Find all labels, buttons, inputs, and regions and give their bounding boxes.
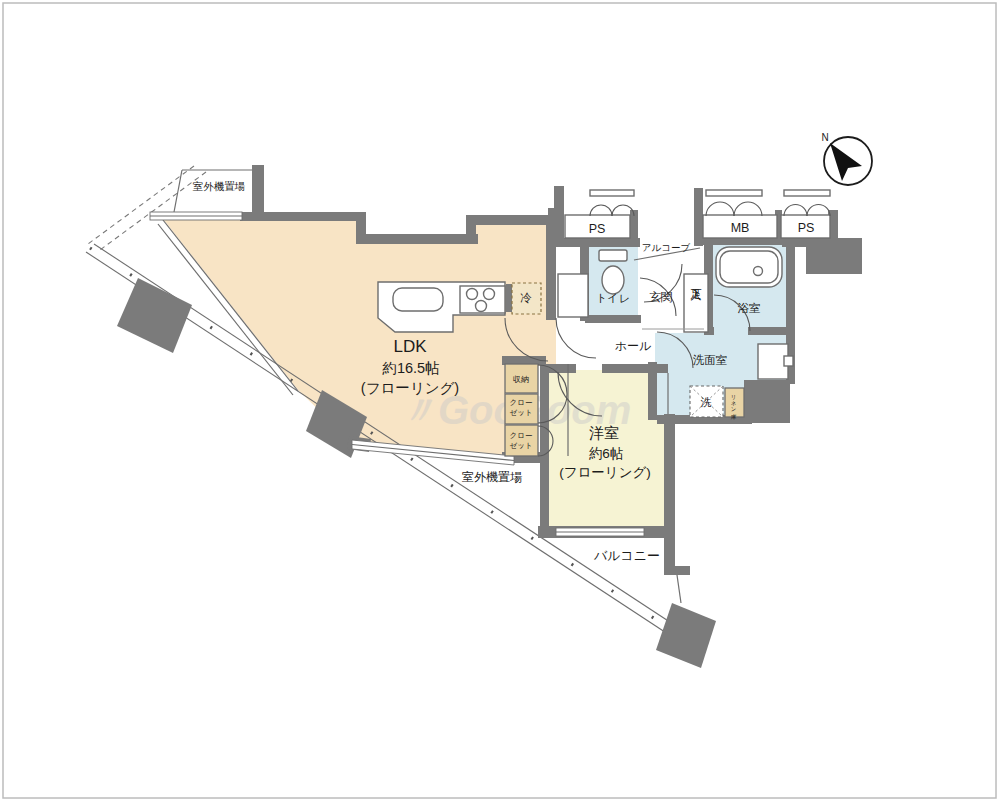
- mb-label: MB: [731, 221, 750, 235]
- closet2-label-line1: クロー: [510, 431, 533, 440]
- compass: N: [821, 132, 872, 185]
- bedroom-floor-type: (フローリング): [559, 465, 651, 480]
- bedroom-size: 約6帖: [589, 446, 624, 461]
- alcove-label: アルコーブ: [642, 242, 691, 253]
- double-door-ps-left: [590, 190, 634, 216]
- stove-burner: [476, 301, 487, 312]
- window-top-left: [150, 212, 242, 220]
- hall-label: ホール: [615, 339, 652, 353]
- stove-burner: [467, 289, 478, 300]
- floor-plan-drawing: 〃GooRoom: [0, 0, 999, 801]
- outdoor-unit-mid-label: 室外機置場: [462, 470, 522, 484]
- window-bedroom-south: [556, 528, 644, 536]
- room-floors: [163, 219, 788, 532]
- hall-storage-box: [558, 274, 588, 317]
- toilet-label: トイレ: [596, 292, 630, 304]
- toilet-fixture: [599, 250, 627, 294]
- ps-right-label: PS: [798, 221, 815, 235]
- double-door-ps-right: [784, 190, 830, 216]
- floor-plan-page: 〃GooRoom: [0, 0, 999, 801]
- bathtub: [716, 247, 782, 287]
- ldk-floor-type: (フローリング): [361, 380, 459, 396]
- kitchen-sink: [393, 288, 443, 311]
- ldk-size: 約16.5帖: [381, 360, 439, 376]
- closet2-label-line2: ゼット: [509, 441, 532, 450]
- closet1-label-line2: ゼット: [509, 408, 532, 417]
- pillar-south: [656, 603, 716, 668]
- pillar-west: [117, 278, 192, 353]
- balcony-label: バルコニー: [593, 548, 660, 563]
- washroom-label: 洗面室: [693, 354, 728, 366]
- toilet-door-arc: [556, 318, 596, 358]
- bedroom-name: 洋室: [589, 424, 619, 441]
- vanity: [758, 344, 793, 379]
- entrance-label: 玄関: [650, 291, 673, 303]
- closet1-label-line1: クロー: [510, 398, 533, 407]
- stove-burner: [484, 289, 495, 300]
- storage-label: 収納: [513, 375, 529, 384]
- pillar-northeast: [806, 238, 862, 274]
- outdoor-unit-top-label: 室外機置場: [193, 180, 246, 192]
- ps-left-label: PS: [589, 222, 606, 236]
- double-door-mb: [706, 190, 762, 216]
- shoe-cabinet-box: [684, 274, 708, 332]
- bathroom-label: 浴室: [738, 302, 761, 314]
- north-label: N: [821, 132, 828, 143]
- ldk-name: LDK: [393, 337, 427, 356]
- refrigerator-label: 冷: [520, 292, 532, 304]
- washer-label: 洗: [701, 396, 712, 408]
